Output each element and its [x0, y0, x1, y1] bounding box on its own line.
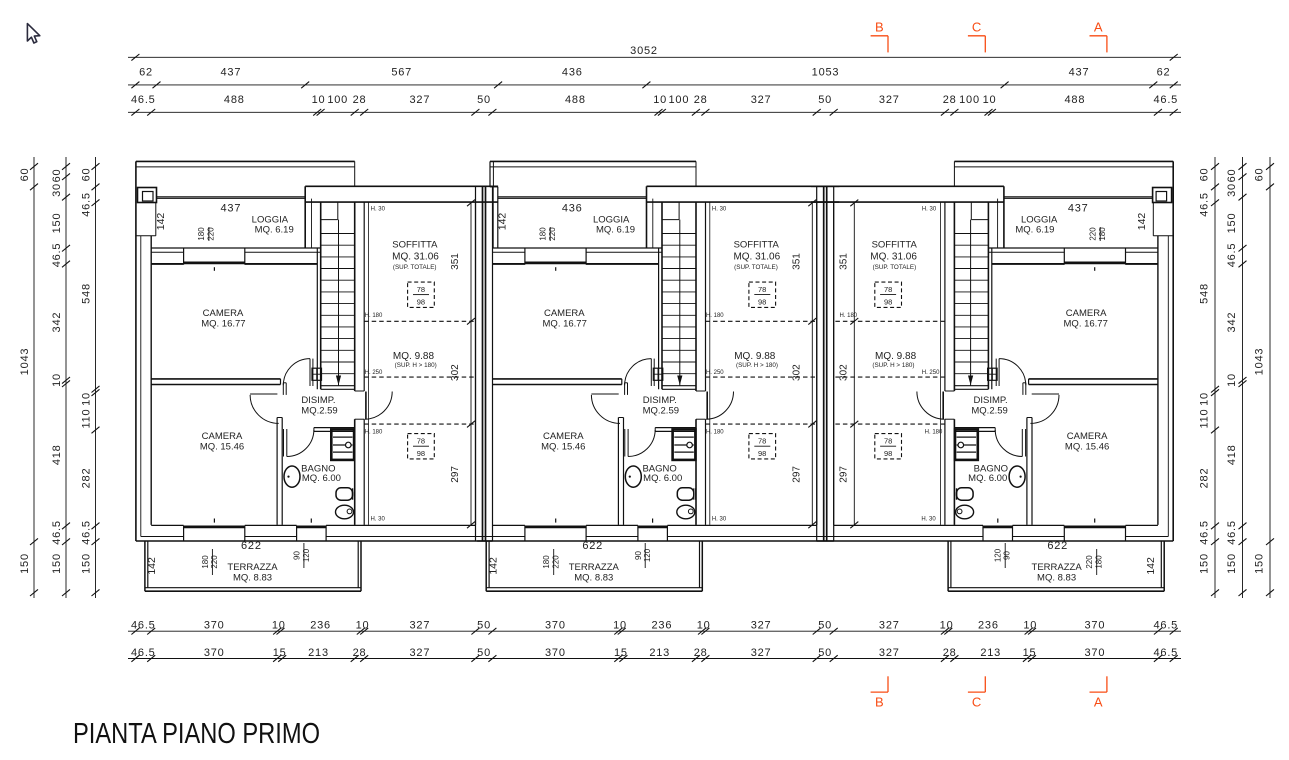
- svg-text:437: 437: [1069, 66, 1090, 78]
- svg-text:DISIMP.: DISIMP.: [974, 395, 1008, 406]
- svg-text:H. 30: H. 30: [922, 207, 937, 213]
- svg-text:297: 297: [838, 466, 849, 483]
- svg-text:30: 30: [51, 183, 63, 197]
- svg-text:351: 351: [450, 253, 461, 270]
- svg-text:10: 10: [613, 620, 627, 632]
- svg-text:302: 302: [450, 364, 461, 381]
- svg-text:46.5: 46.5: [51, 520, 63, 545]
- svg-text:98: 98: [884, 449, 892, 458]
- svg-text:15: 15: [1023, 647, 1037, 659]
- svg-text:H. 180: H. 180: [706, 429, 724, 435]
- svg-text:98: 98: [758, 449, 766, 458]
- svg-text:78: 78: [884, 285, 892, 294]
- svg-text:C: C: [972, 695, 981, 710]
- svg-text:15: 15: [614, 647, 628, 659]
- svg-text:10: 10: [653, 94, 667, 106]
- svg-text:213: 213: [980, 647, 1001, 659]
- svg-text:H. 30: H. 30: [371, 207, 386, 213]
- svg-text:MQ. 9.88: MQ. 9.88: [393, 351, 435, 362]
- svg-text:CAMERA: CAMERA: [203, 308, 244, 319]
- svg-text:282: 282: [1199, 468, 1211, 489]
- svg-text:50: 50: [477, 94, 491, 106]
- svg-text:142: 142: [1145, 557, 1157, 575]
- svg-text:10: 10: [697, 620, 711, 632]
- svg-text:220: 220: [1085, 555, 1094, 569]
- svg-text:90: 90: [293, 551, 302, 560]
- svg-text:28: 28: [694, 647, 708, 659]
- svg-text:437: 437: [221, 203, 242, 215]
- svg-text:MQ. 16.77: MQ. 16.77: [543, 318, 587, 329]
- svg-text:327: 327: [410, 647, 431, 659]
- svg-text:488: 488: [565, 94, 586, 106]
- svg-text:78: 78: [884, 437, 892, 446]
- svg-text:327: 327: [410, 94, 431, 106]
- svg-text:90: 90: [634, 551, 643, 560]
- svg-text:15: 15: [273, 647, 287, 659]
- svg-text:213: 213: [649, 647, 670, 659]
- svg-text:MQ. 31.06: MQ. 31.06: [392, 252, 439, 263]
- svg-text:10: 10: [51, 373, 63, 387]
- svg-text:142: 142: [155, 213, 167, 231]
- svg-text:10: 10: [81, 392, 93, 406]
- svg-text:H. 30: H. 30: [371, 517, 386, 523]
- svg-text:327: 327: [410, 620, 431, 632]
- svg-text:H. 250: H. 250: [922, 370, 940, 376]
- svg-text:98: 98: [417, 449, 425, 458]
- svg-text:78: 78: [758, 437, 766, 446]
- svg-text:10: 10: [1199, 392, 1211, 406]
- svg-text:60: 60: [1199, 168, 1211, 182]
- svg-text:46.5: 46.5: [81, 192, 93, 217]
- svg-text:60: 60: [19, 168, 31, 182]
- svg-text:418: 418: [1226, 444, 1238, 465]
- svg-text:78: 78: [417, 285, 425, 294]
- svg-text:98: 98: [417, 298, 425, 307]
- svg-text:220: 220: [548, 227, 557, 241]
- svg-text:B: B: [875, 20, 884, 35]
- svg-text:A: A: [1094, 20, 1103, 35]
- svg-text:CAMERA: CAMERA: [544, 308, 585, 319]
- svg-text:H. 250: H. 250: [706, 370, 724, 376]
- svg-text:100: 100: [669, 94, 690, 106]
- svg-text:10: 10: [983, 94, 997, 106]
- svg-text:567: 567: [391, 66, 412, 78]
- svg-text:150: 150: [1199, 553, 1211, 574]
- svg-text:100: 100: [327, 94, 348, 106]
- svg-text:MQ. 31.06: MQ. 31.06: [733, 252, 780, 263]
- svg-text:327: 327: [751, 94, 772, 106]
- svg-text:MQ. 16.77: MQ. 16.77: [201, 318, 245, 329]
- svg-text:327: 327: [751, 647, 772, 659]
- svg-text:3052: 3052: [630, 45, 658, 57]
- svg-text:142: 142: [146, 557, 158, 575]
- svg-text:302: 302: [792, 364, 803, 381]
- svg-text:100: 100: [959, 94, 980, 106]
- svg-text:10: 10: [1226, 373, 1238, 387]
- svg-text:MQ. 8.83: MQ. 8.83: [1037, 573, 1076, 584]
- svg-text:180: 180: [1094, 555, 1103, 569]
- svg-text:46.5: 46.5: [1199, 192, 1211, 217]
- svg-text:236: 236: [310, 620, 331, 632]
- svg-text:327: 327: [879, 647, 900, 659]
- svg-text:46.5: 46.5: [1153, 647, 1178, 659]
- svg-text:120: 120: [643, 548, 652, 562]
- svg-text:MQ. 9.88: MQ. 9.88: [734, 351, 776, 362]
- svg-text:437: 437: [221, 66, 242, 78]
- svg-text:B: B: [875, 695, 884, 710]
- svg-text:150: 150: [1254, 553, 1266, 574]
- svg-text:46.5: 46.5: [131, 647, 156, 659]
- svg-text:548: 548: [1199, 283, 1211, 304]
- svg-text:62: 62: [139, 66, 153, 78]
- svg-text:213: 213: [308, 647, 329, 659]
- svg-text:(SUP. H > 180): (SUP. H > 180): [872, 362, 914, 369]
- svg-text:CAMERA: CAMERA: [1066, 308, 1107, 319]
- svg-text:CAMERA: CAMERA: [1067, 431, 1108, 442]
- svg-text:150: 150: [1226, 553, 1238, 574]
- svg-text:370: 370: [545, 647, 566, 659]
- svg-text:150: 150: [51, 213, 63, 234]
- svg-text:370: 370: [1085, 647, 1106, 659]
- svg-text:H. 30: H. 30: [921, 517, 936, 523]
- svg-text:28: 28: [943, 94, 957, 106]
- svg-text:50: 50: [818, 94, 832, 106]
- svg-text:60: 60: [1254, 168, 1266, 182]
- svg-text:436: 436: [562, 66, 583, 78]
- svg-text:1053: 1053: [812, 66, 840, 78]
- svg-text:28: 28: [694, 94, 708, 106]
- svg-text:50: 50: [818, 647, 832, 659]
- svg-text:220: 220: [207, 227, 216, 241]
- svg-text:10: 10: [1023, 620, 1037, 632]
- svg-text:150: 150: [51, 553, 63, 574]
- svg-text:351: 351: [838, 253, 849, 270]
- svg-text:LOGGIA: LOGGIA: [593, 214, 630, 225]
- svg-text:LOGGIA: LOGGIA: [1021, 214, 1058, 225]
- svg-text:98: 98: [884, 298, 892, 307]
- svg-text:60: 60: [51, 169, 63, 183]
- svg-text:110: 110: [81, 409, 93, 429]
- svg-text:370: 370: [204, 647, 225, 659]
- svg-text:370: 370: [1085, 620, 1106, 632]
- svg-text:MQ. 6.00: MQ. 6.00: [968, 473, 1007, 484]
- svg-text:46.5: 46.5: [131, 620, 156, 632]
- svg-text:46.5: 46.5: [51, 243, 63, 268]
- svg-text:622: 622: [582, 540, 603, 552]
- svg-text:418: 418: [51, 444, 63, 465]
- svg-text:50: 50: [477, 647, 491, 659]
- svg-text:46.5: 46.5: [131, 94, 156, 106]
- svg-text:46.5: 46.5: [1153, 94, 1178, 106]
- svg-text:60: 60: [81, 168, 93, 182]
- svg-text:282: 282: [81, 468, 93, 489]
- svg-text:28: 28: [353, 94, 367, 106]
- svg-text:C: C: [972, 20, 981, 35]
- svg-text:142: 142: [496, 213, 508, 231]
- svg-text:MQ.2.59: MQ.2.59: [971, 406, 1007, 417]
- svg-text:MQ. 6.19: MQ. 6.19: [255, 225, 294, 236]
- svg-text:351: 351: [792, 253, 803, 270]
- svg-text:327: 327: [879, 94, 900, 106]
- svg-text:10: 10: [356, 620, 370, 632]
- svg-text:436: 436: [562, 203, 583, 215]
- svg-text:370: 370: [545, 620, 566, 632]
- svg-text:10: 10: [940, 620, 954, 632]
- svg-text:28: 28: [353, 647, 367, 659]
- svg-text:437: 437: [1068, 203, 1089, 215]
- svg-text:MQ.2.59: MQ.2.59: [301, 406, 337, 417]
- svg-text:302: 302: [838, 364, 849, 381]
- svg-text:10: 10: [312, 94, 326, 106]
- svg-text:PIANTA PIANO PRIMO: PIANTA PIANO PRIMO: [73, 718, 320, 750]
- svg-text:220: 220: [1089, 227, 1098, 241]
- svg-text:TERRAZZA: TERRAZZA: [227, 562, 278, 573]
- svg-text:180: 180: [542, 555, 551, 569]
- svg-text:MQ. 31.06: MQ. 31.06: [870, 252, 917, 263]
- svg-text:488: 488: [1065, 94, 1086, 106]
- svg-text:142: 142: [488, 557, 500, 575]
- svg-text:DISIMP.: DISIMP.: [643, 395, 677, 406]
- svg-text:370: 370: [204, 620, 225, 632]
- svg-text:120: 120: [302, 548, 311, 562]
- svg-text:180: 180: [201, 555, 210, 569]
- svg-text:180: 180: [1098, 227, 1107, 241]
- svg-text:H. 250: H. 250: [365, 370, 383, 376]
- svg-text:28: 28: [943, 647, 957, 659]
- svg-text:H. 180: H. 180: [365, 313, 383, 319]
- svg-text:50: 50: [818, 620, 832, 632]
- svg-text:DISIMP.: DISIMP.: [301, 395, 335, 406]
- svg-text:MQ. 6.00: MQ. 6.00: [302, 473, 341, 484]
- svg-text:1043: 1043: [19, 348, 31, 376]
- svg-text:46.5: 46.5: [1226, 520, 1238, 545]
- svg-text:(SUP. H > 180): (SUP. H > 180): [736, 362, 778, 369]
- svg-text:180: 180: [539, 227, 548, 241]
- svg-text:1043: 1043: [1254, 348, 1266, 376]
- svg-text:548: 548: [81, 283, 93, 304]
- svg-text:MQ. 16.77: MQ. 16.77: [1064, 318, 1108, 329]
- svg-text:MQ. 6.19: MQ. 6.19: [1015, 225, 1054, 236]
- svg-text:10: 10: [272, 620, 286, 632]
- svg-text:MQ.2.59: MQ.2.59: [643, 406, 679, 417]
- svg-text:MQ. 8.83: MQ. 8.83: [574, 573, 613, 584]
- svg-text:SOFFITTA: SOFFITTA: [734, 240, 780, 251]
- svg-text:30: 30: [1226, 183, 1238, 197]
- svg-text:46.5: 46.5: [81, 520, 93, 545]
- svg-text:(SUP. TOTALE): (SUP. TOTALE): [393, 264, 437, 271]
- svg-text:H. 30: H. 30: [712, 517, 727, 523]
- svg-text:220: 220: [210, 555, 219, 569]
- svg-text:236: 236: [978, 620, 999, 632]
- svg-text:342: 342: [1226, 312, 1238, 333]
- svg-text:327: 327: [879, 620, 900, 632]
- svg-text:H. 180: H. 180: [839, 313, 857, 319]
- svg-text:SOFFITTA: SOFFITTA: [872, 240, 918, 251]
- svg-text:MQ. 15.46: MQ. 15.46: [541, 442, 585, 453]
- svg-text:120: 120: [993, 548, 1002, 562]
- svg-text:SOFFITTA: SOFFITTA: [392, 240, 438, 251]
- svg-text:236: 236: [652, 620, 673, 632]
- svg-text:MQ. 15.46: MQ. 15.46: [1065, 442, 1109, 453]
- svg-text:342: 342: [51, 312, 63, 333]
- svg-text:H. 180: H. 180: [365, 429, 383, 435]
- svg-text:622: 622: [1047, 540, 1068, 552]
- svg-text:H. 180: H. 180: [925, 429, 943, 435]
- svg-text:622: 622: [241, 540, 262, 552]
- svg-text:MQ. 9.88: MQ. 9.88: [875, 351, 917, 362]
- svg-text:MQ. 15.46: MQ. 15.46: [200, 442, 244, 453]
- svg-text:46.5: 46.5: [1153, 620, 1178, 632]
- svg-text:62: 62: [1157, 66, 1171, 78]
- svg-text:98: 98: [758, 298, 766, 307]
- svg-text:(SUP. H > 180): (SUP. H > 180): [395, 362, 437, 369]
- svg-text:LOGGIA: LOGGIA: [252, 214, 289, 225]
- svg-text:78: 78: [758, 285, 766, 294]
- svg-text:TERRAZZA: TERRAZZA: [1032, 562, 1083, 573]
- svg-text:150: 150: [1226, 213, 1238, 234]
- svg-text:CAMERA: CAMERA: [202, 431, 243, 442]
- svg-text:MQ. 6.19: MQ. 6.19: [596, 225, 635, 236]
- svg-text:CAMERA: CAMERA: [543, 431, 584, 442]
- svg-text:142: 142: [1136, 213, 1148, 231]
- svg-text:180: 180: [197, 227, 206, 241]
- svg-text:220: 220: [552, 555, 561, 569]
- svg-text:H. 30: H. 30: [712, 207, 727, 213]
- svg-text:297: 297: [450, 466, 461, 483]
- svg-text:46.5: 46.5: [1226, 243, 1238, 268]
- svg-text:327: 327: [751, 620, 772, 632]
- svg-text:297: 297: [792, 466, 803, 483]
- svg-text:50: 50: [477, 620, 491, 632]
- svg-text:A: A: [1094, 695, 1103, 710]
- svg-text:150: 150: [81, 553, 93, 574]
- svg-text:(SUP. TOTALE): (SUP. TOTALE): [873, 264, 917, 271]
- svg-text:MQ. 6.00: MQ. 6.00: [643, 473, 682, 484]
- svg-text:90: 90: [1003, 551, 1012, 560]
- svg-text:H. 180: H. 180: [706, 313, 724, 319]
- svg-text:(SUP. TOTALE): (SUP. TOTALE): [734, 264, 778, 271]
- svg-text:46.5: 46.5: [1199, 520, 1211, 545]
- svg-text:110: 110: [1199, 409, 1211, 429]
- svg-text:488: 488: [224, 94, 245, 106]
- svg-text:MQ. 8.83: MQ. 8.83: [233, 573, 272, 584]
- svg-text:TERRAZZA: TERRAZZA: [569, 562, 620, 573]
- svg-text:78: 78: [417, 437, 425, 446]
- svg-text:150: 150: [19, 553, 31, 574]
- svg-text:60: 60: [1226, 169, 1238, 183]
